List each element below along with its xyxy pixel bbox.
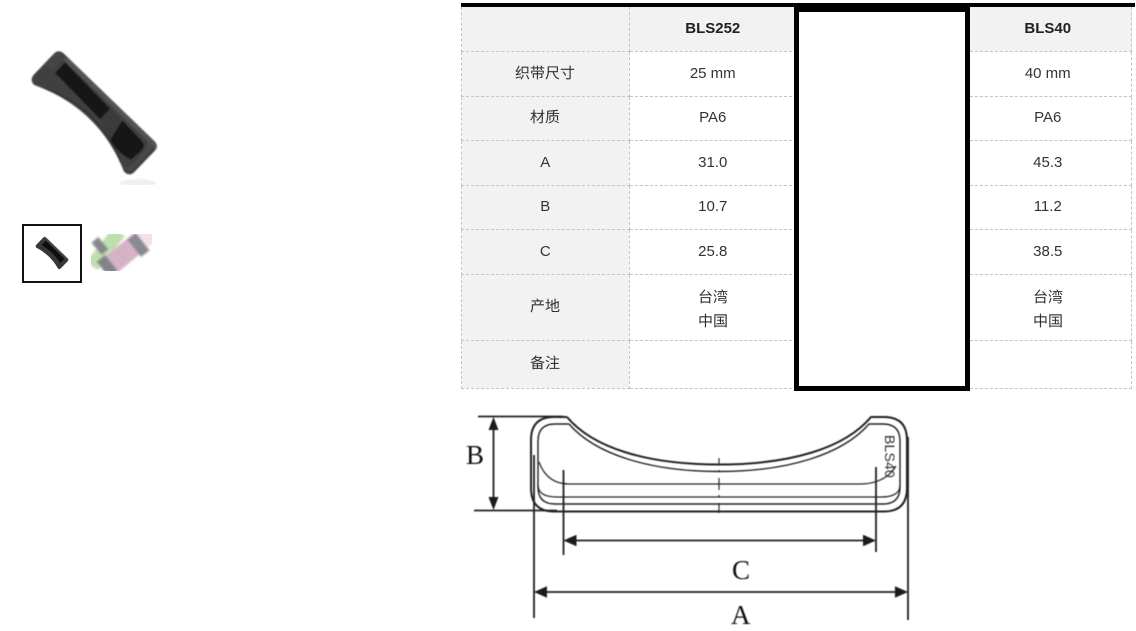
svg-text:C: C [732,555,750,585]
svg-text:A: A [731,600,751,626]
svg-text:BLS40: BLS40 [882,435,898,478]
svg-text:B: B [466,440,484,470]
